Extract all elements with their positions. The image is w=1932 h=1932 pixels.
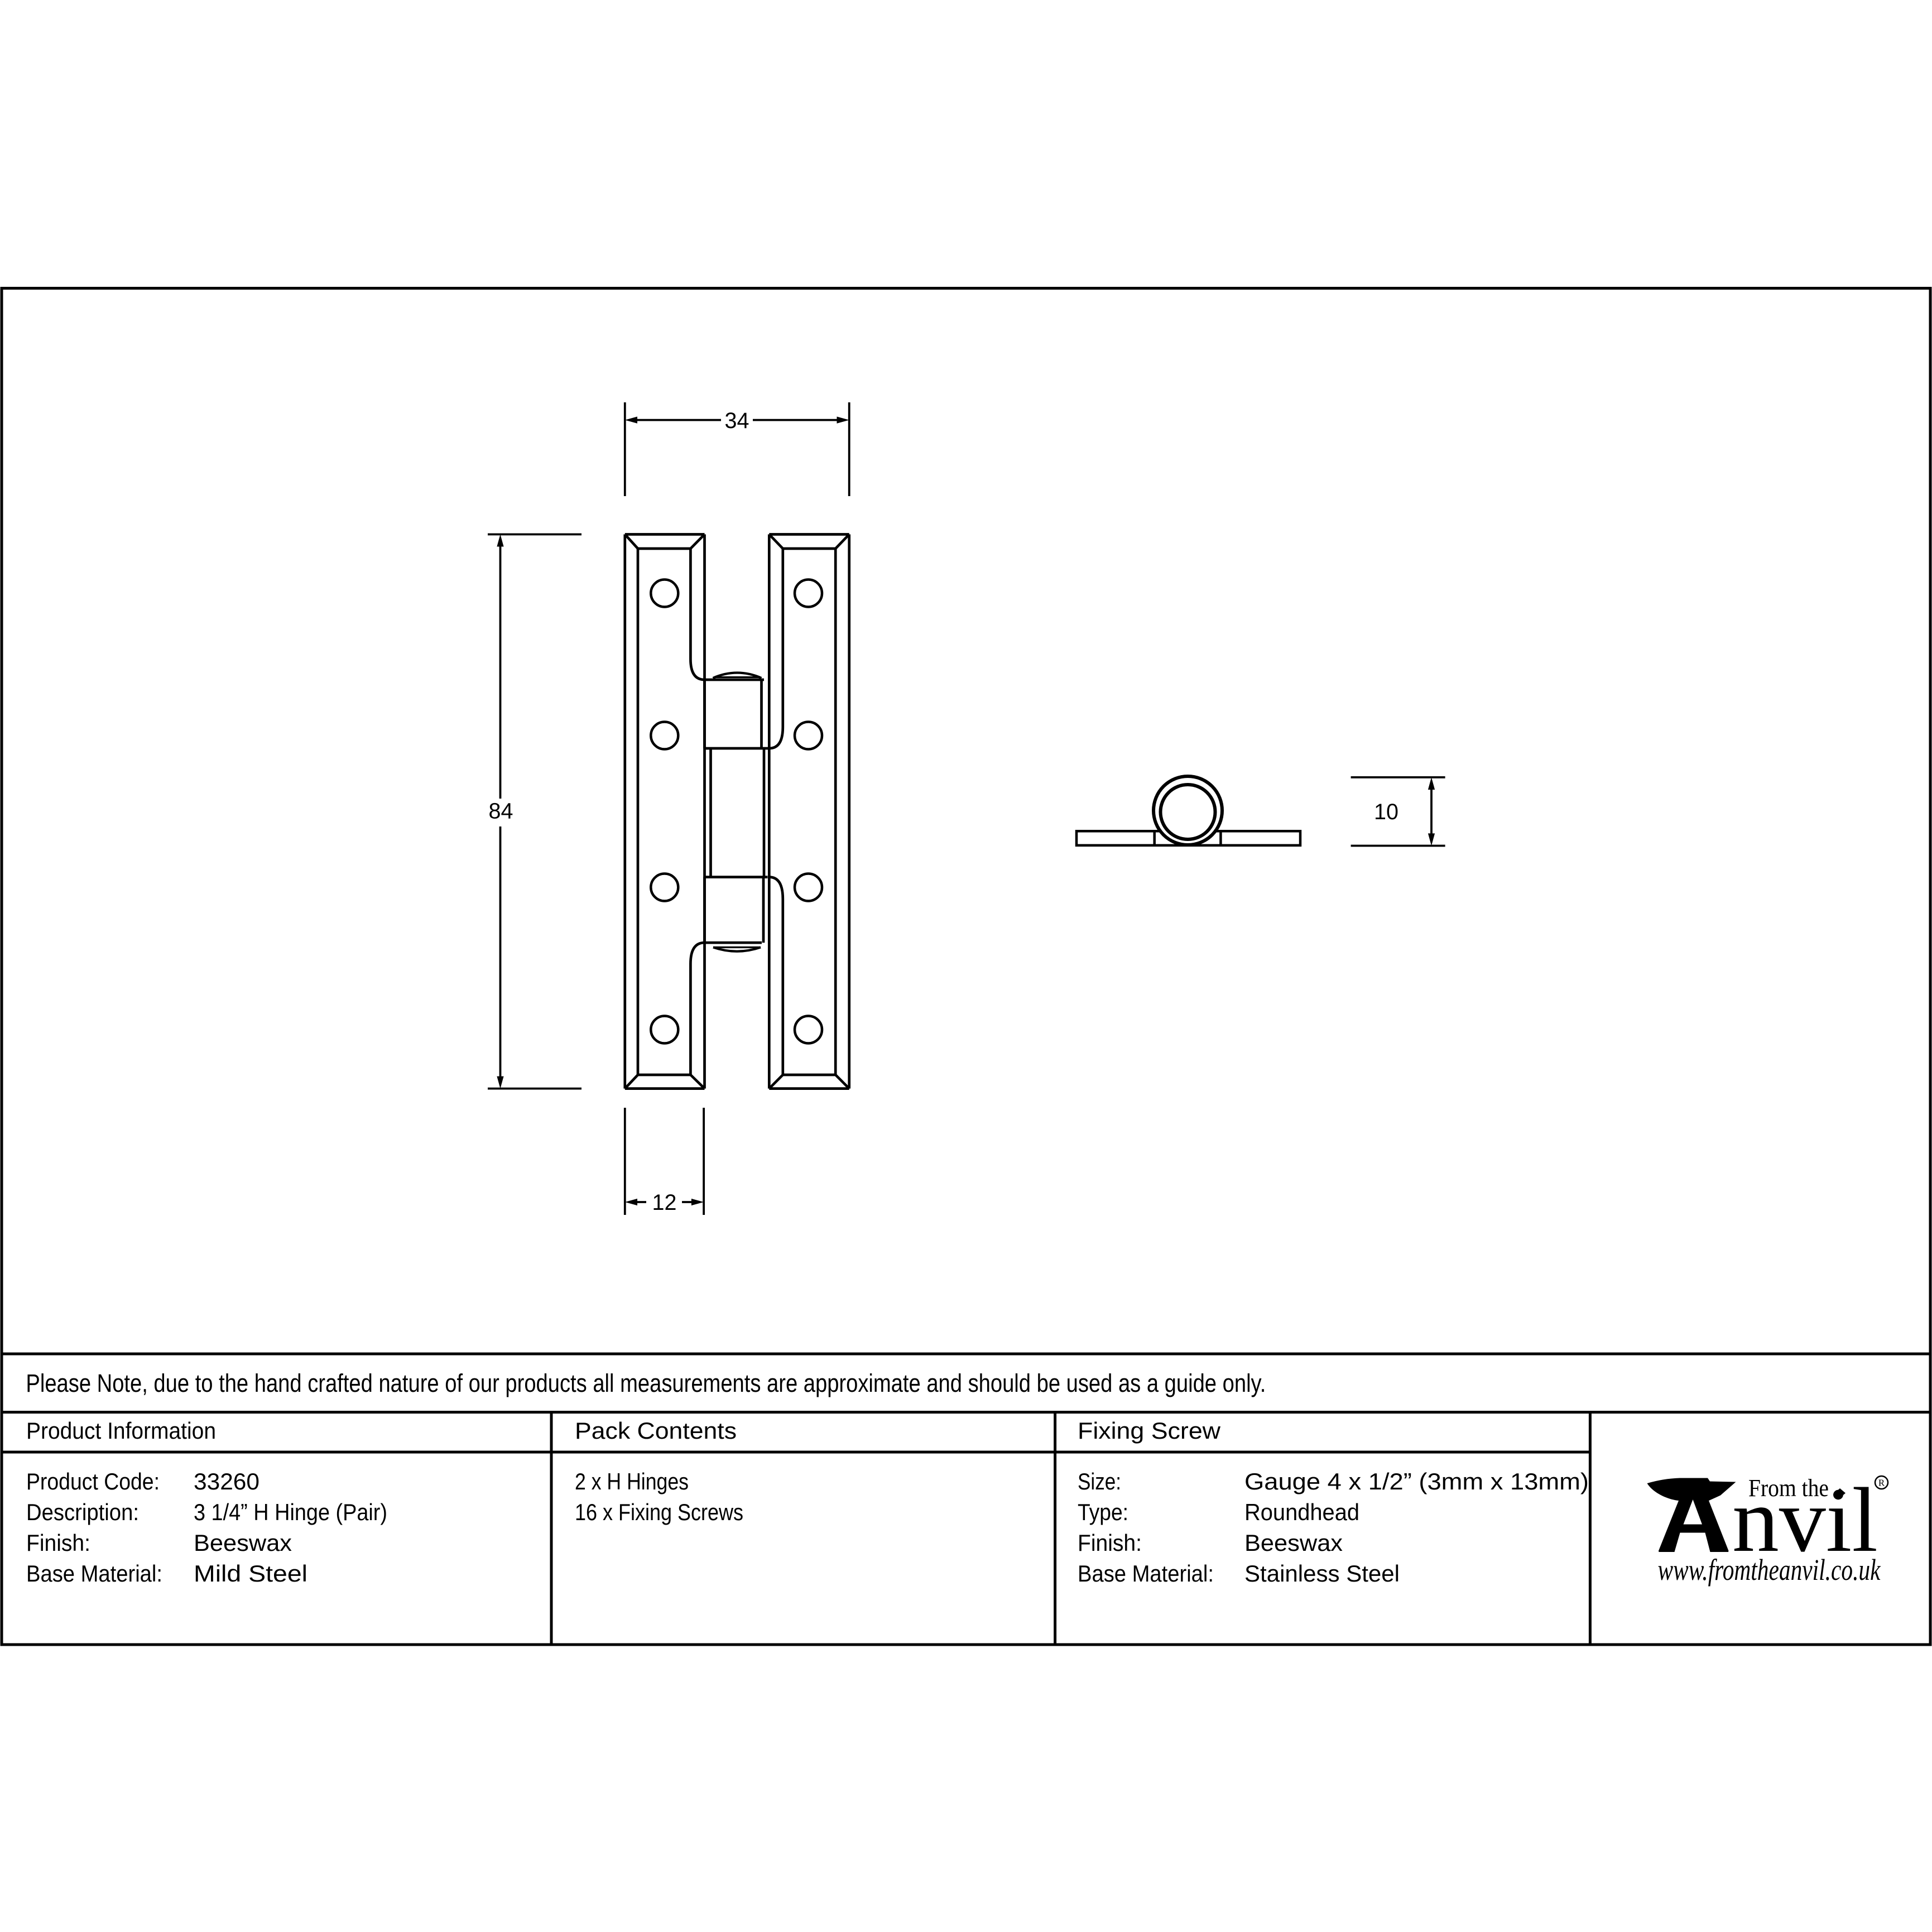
- svg-text:Base Material:: Base Material:: [1078, 1560, 1214, 1587]
- svg-text:34: 34: [725, 408, 749, 433]
- svg-text:R: R: [1878, 1478, 1885, 1488]
- svg-text:Beeswax: Beeswax: [194, 1530, 292, 1556]
- svg-text:Pack Contents: Pack Contents: [575, 1417, 737, 1444]
- svg-text:Product Code:: Product Code:: [26, 1468, 160, 1494]
- svg-text:12: 12: [652, 1190, 677, 1215]
- svg-text:Size:: Size:: [1078, 1468, 1121, 1494]
- svg-text:Finish:: Finish:: [1078, 1530, 1142, 1556]
- svg-text:10: 10: [1374, 800, 1398, 824]
- svg-text:www.fromtheanvil.co.uk: www.fromtheanvil.co.uk: [1658, 1553, 1881, 1587]
- svg-text:Finish:: Finish:: [26, 1530, 90, 1556]
- svg-text:Description:: Description:: [26, 1499, 139, 1525]
- svg-text:Roundhead: Roundhead: [1244, 1499, 1359, 1525]
- svg-text:Fixing Screw: Fixing Screw: [1078, 1417, 1221, 1444]
- svg-text:Product Information: Product Information: [26, 1417, 216, 1444]
- svg-text:Please Note, due to the hand c: Please Note, due to the hand crafted nat…: [26, 1369, 1266, 1397]
- svg-text:3 1/4” H Hinge (Pair): 3 1/4” H Hinge (Pair): [194, 1499, 387, 1525]
- svg-text:16 x Fixing Screws: 16 x Fixing Screws: [575, 1499, 743, 1525]
- svg-text:33260: 33260: [194, 1468, 259, 1494]
- svg-text:Beeswax: Beeswax: [1244, 1530, 1343, 1556]
- svg-text:Type:: Type:: [1078, 1499, 1128, 1525]
- svg-text:Mild Steel: Mild Steel: [194, 1560, 307, 1587]
- svg-text:84: 84: [489, 799, 513, 824]
- svg-text:Stainless Steel: Stainless Steel: [1244, 1560, 1400, 1587]
- svg-text:2 x H Hinges: 2 x H Hinges: [575, 1468, 689, 1494]
- svg-text:Gauge 4 x 1/2” (3mm x 13mm): Gauge 4 x 1/2” (3mm x 13mm): [1244, 1468, 1589, 1494]
- svg-text:Base Material:: Base Material:: [26, 1560, 162, 1587]
